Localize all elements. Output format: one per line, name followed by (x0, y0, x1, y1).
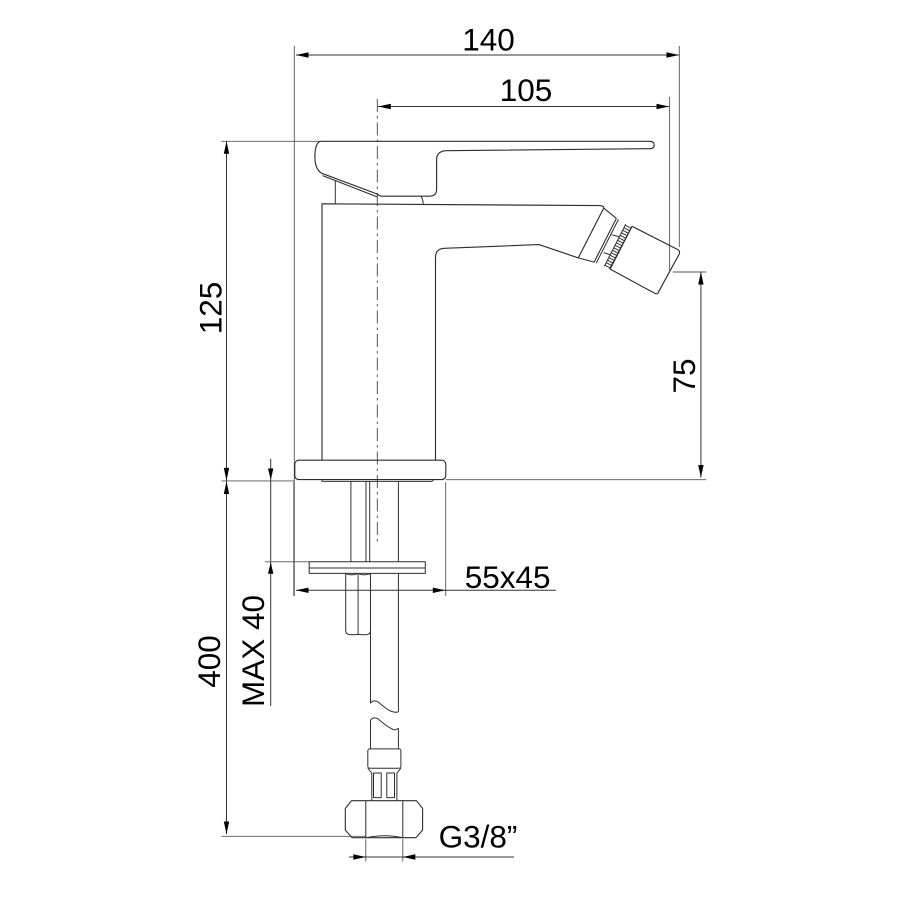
svg-text:MAX 40: MAX 40 (235, 595, 271, 707)
svg-text:75: 75 (666, 358, 702, 393)
svg-text:400: 400 (191, 635, 227, 688)
svg-text:105: 105 (500, 72, 553, 108)
svg-text:55x45: 55x45 (465, 559, 551, 595)
svg-text:140: 140 (462, 22, 515, 58)
svg-text:G3/8”: G3/8” (439, 819, 518, 855)
svg-text:125: 125 (193, 282, 229, 335)
